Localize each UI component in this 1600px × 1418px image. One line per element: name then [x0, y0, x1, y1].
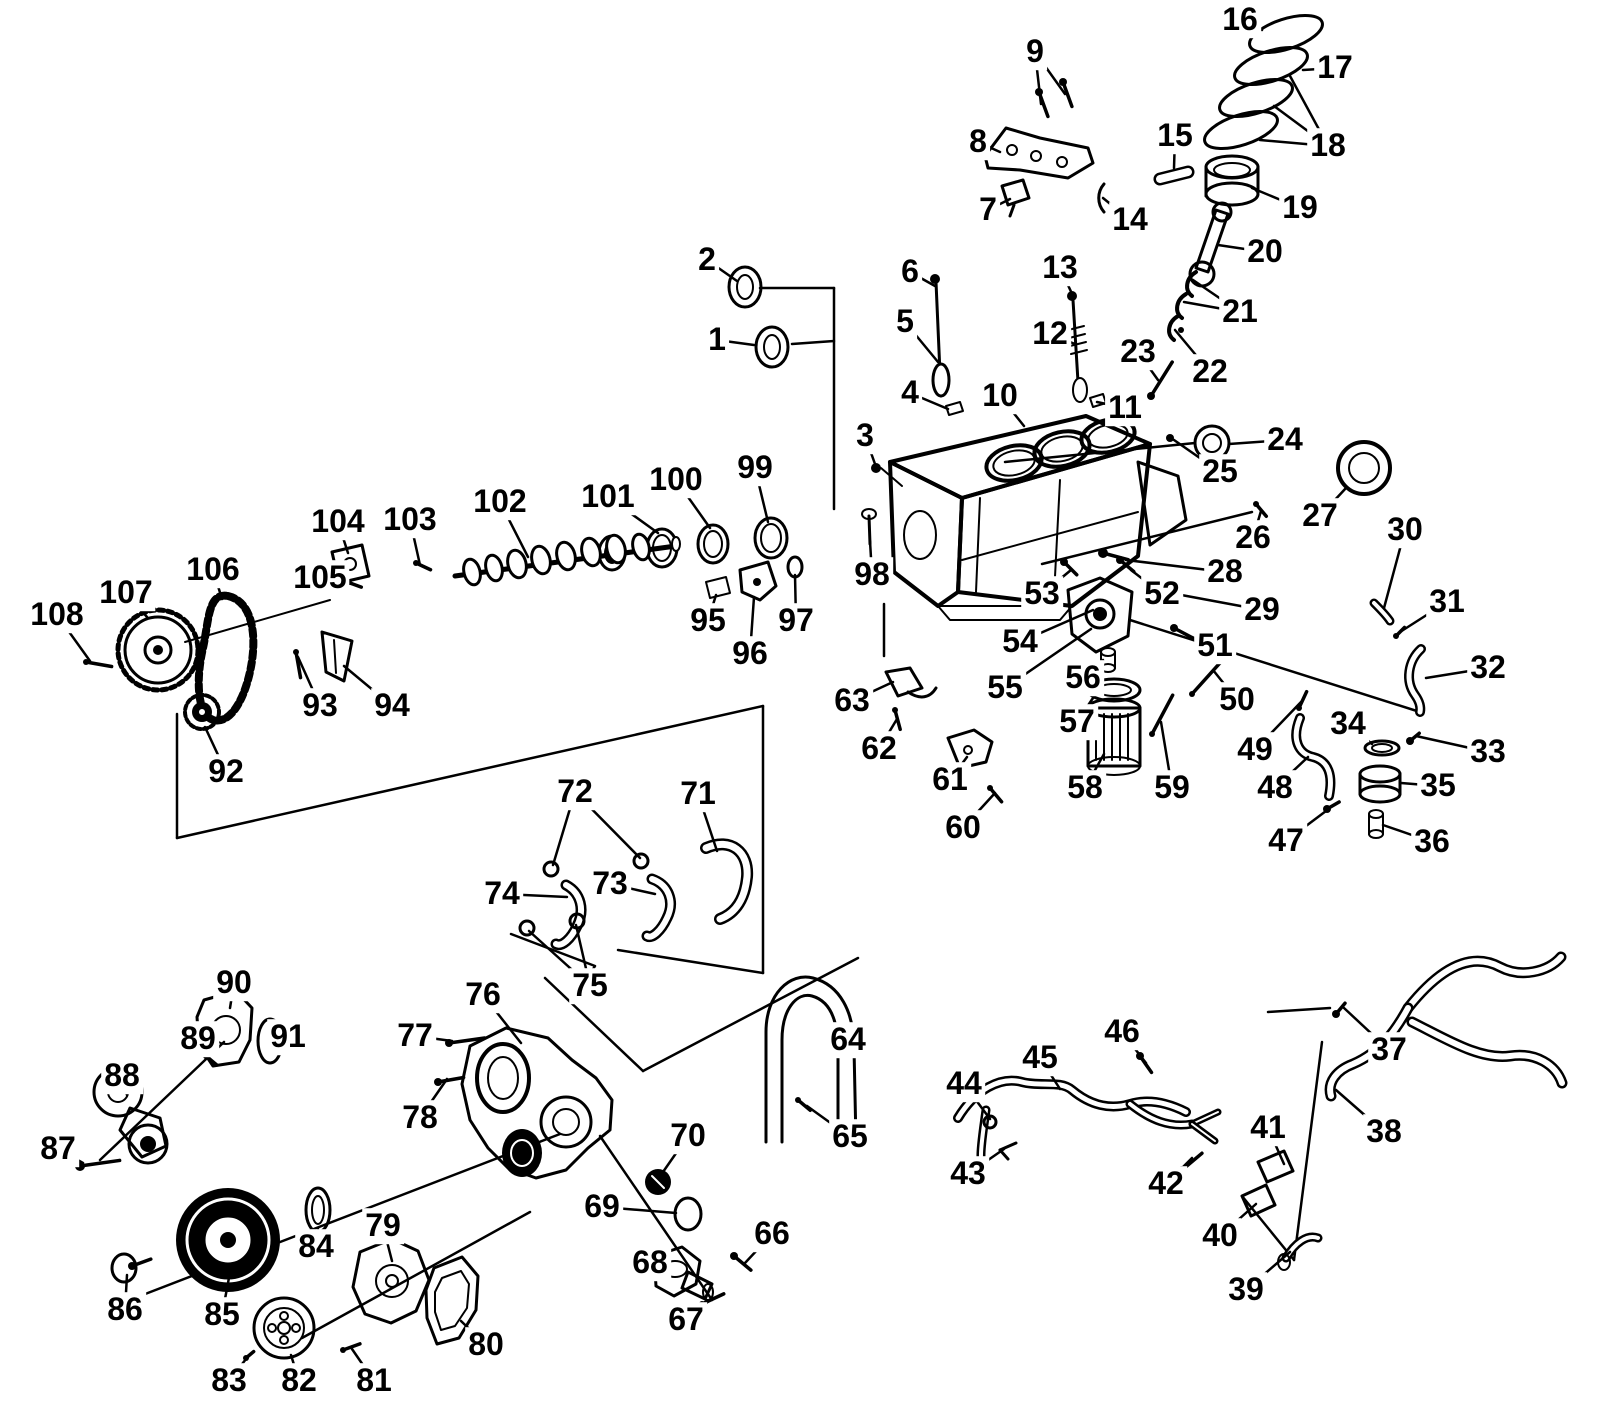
callout-98: 98 — [851, 557, 893, 593]
callout-9: 9 — [1023, 34, 1047, 70]
callout-34: 34 — [1327, 706, 1369, 742]
callout-33: 33 — [1467, 734, 1509, 770]
callout-49: 49 — [1234, 732, 1276, 768]
callout-17: 17 — [1314, 50, 1356, 86]
callout-6: 6 — [898, 254, 922, 290]
callout-86: 86 — [104, 1292, 146, 1328]
callout-96: 96 — [729, 636, 771, 672]
callout-80: 80 — [465, 1327, 507, 1363]
callout-63: 63 — [831, 683, 873, 719]
callout-78: 78 — [399, 1100, 441, 1136]
callout-89: 89 — [177, 1021, 219, 1057]
callout-55: 55 — [984, 670, 1026, 706]
callout-75: 75 — [569, 968, 611, 1004]
callout-51: 51 — [1194, 628, 1236, 664]
callout-12: 12 — [1029, 316, 1071, 352]
callout-69: 69 — [581, 1189, 623, 1225]
callout-103: 103 — [380, 502, 439, 538]
callout-92: 92 — [205, 754, 247, 790]
callout-8: 8 — [966, 124, 990, 160]
callout-31: 31 — [1426, 584, 1468, 620]
callout-101: 101 — [578, 479, 637, 515]
callout-41: 41 — [1247, 1110, 1289, 1146]
callout-11: 11 — [1105, 390, 1145, 426]
callout-10: 10 — [979, 378, 1021, 414]
callout-85: 85 — [201, 1297, 243, 1333]
callout-91: 91 — [267, 1019, 309, 1055]
callout-60: 60 — [942, 810, 984, 846]
callout-23: 23 — [1117, 334, 1159, 370]
callout-52: 52 — [1141, 576, 1183, 612]
callout-95: 95 — [687, 603, 729, 639]
callout-70: 70 — [667, 1118, 709, 1154]
callout-97: 97 — [775, 603, 817, 639]
callout-102: 102 — [470, 484, 529, 520]
callout-38: 38 — [1363, 1114, 1405, 1150]
callout-15: 15 — [1154, 118, 1196, 154]
callout-18: 18 — [1307, 128, 1349, 164]
callout-105: 105 — [290, 560, 349, 596]
callout-1: 1 — [705, 322, 729, 358]
callout-layer: 1234567891011121314151617181920212223242… — [0, 0, 1600, 1418]
callout-73: 73 — [589, 866, 631, 902]
callout-104: 104 — [308, 504, 367, 540]
callout-100: 100 — [646, 462, 705, 498]
callout-47: 47 — [1265, 823, 1307, 859]
callout-99: 99 — [734, 450, 776, 486]
callout-58: 58 — [1064, 770, 1106, 806]
callout-35: 35 — [1417, 768, 1459, 804]
callout-59: 59 — [1151, 770, 1193, 806]
callout-81: 81 — [353, 1363, 395, 1399]
callout-26: 26 — [1232, 520, 1274, 556]
callout-53: 53 — [1021, 576, 1063, 612]
callout-30: 30 — [1384, 512, 1426, 548]
callout-32: 32 — [1467, 650, 1509, 686]
callout-37: 37 — [1368, 1032, 1410, 1068]
callout-64: 64 — [827, 1022, 869, 1058]
callout-66: 66 — [751, 1216, 793, 1252]
callout-22: 22 — [1189, 354, 1231, 390]
callout-29: 29 — [1241, 592, 1283, 628]
callout-77: 77 — [394, 1018, 436, 1054]
callout-43: 43 — [947, 1156, 989, 1192]
callout-50: 50 — [1216, 682, 1258, 718]
callout-76: 76 — [462, 977, 504, 1013]
callout-19: 19 — [1279, 190, 1321, 226]
callout-79: 79 — [362, 1208, 404, 1244]
callout-72: 72 — [554, 774, 596, 810]
callout-3: 3 — [853, 418, 877, 454]
callout-108: 108 — [27, 597, 86, 633]
callout-44: 44 — [943, 1066, 985, 1102]
callout-45: 45 — [1019, 1040, 1061, 1076]
callout-21: 21 — [1219, 294, 1261, 330]
callout-67: 67 — [665, 1302, 707, 1338]
callout-83: 83 — [208, 1363, 250, 1399]
callout-27: 27 — [1299, 498, 1341, 534]
callout-4: 4 — [898, 375, 922, 411]
callout-7: 7 — [976, 192, 1000, 228]
callout-36: 36 — [1411, 824, 1453, 860]
callout-40: 40 — [1199, 1218, 1241, 1254]
callout-88: 88 — [101, 1058, 143, 1094]
callout-16: 16 — [1219, 2, 1261, 38]
callout-82: 82 — [278, 1363, 320, 1399]
engine-exploded-diagram: 1234567891011121314151617181920212223242… — [0, 0, 1600, 1418]
callout-42: 42 — [1145, 1166, 1187, 1202]
callout-106: 106 — [183, 552, 242, 588]
callout-94: 94 — [371, 688, 413, 724]
callout-68: 68 — [629, 1245, 671, 1281]
callout-20: 20 — [1244, 234, 1286, 270]
callout-56: 56 — [1062, 660, 1104, 696]
callout-90: 90 — [213, 965, 255, 1001]
callout-74: 74 — [481, 876, 523, 912]
callout-62: 62 — [858, 731, 900, 767]
callout-93: 93 — [299, 688, 341, 724]
callout-28: 28 — [1204, 554, 1246, 590]
callout-61: 61 — [929, 762, 971, 798]
callout-57: 57 — [1056, 704, 1098, 740]
callout-2: 2 — [695, 242, 719, 278]
callout-54: 54 — [999, 624, 1041, 660]
callout-71: 71 — [677, 776, 719, 812]
callout-13: 13 — [1039, 250, 1081, 286]
callout-39: 39 — [1225, 1272, 1267, 1308]
callout-5: 5 — [893, 304, 917, 340]
callout-65: 65 — [829, 1119, 871, 1155]
callout-48: 48 — [1254, 770, 1296, 806]
callout-46: 46 — [1101, 1014, 1143, 1050]
callout-87: 87 — [37, 1131, 79, 1167]
callout-84: 84 — [295, 1229, 337, 1265]
callout-14: 14 — [1109, 202, 1151, 238]
callout-24: 24 — [1264, 422, 1306, 458]
callout-107: 107 — [96, 575, 155, 611]
callout-25: 25 — [1199, 454, 1241, 490]
